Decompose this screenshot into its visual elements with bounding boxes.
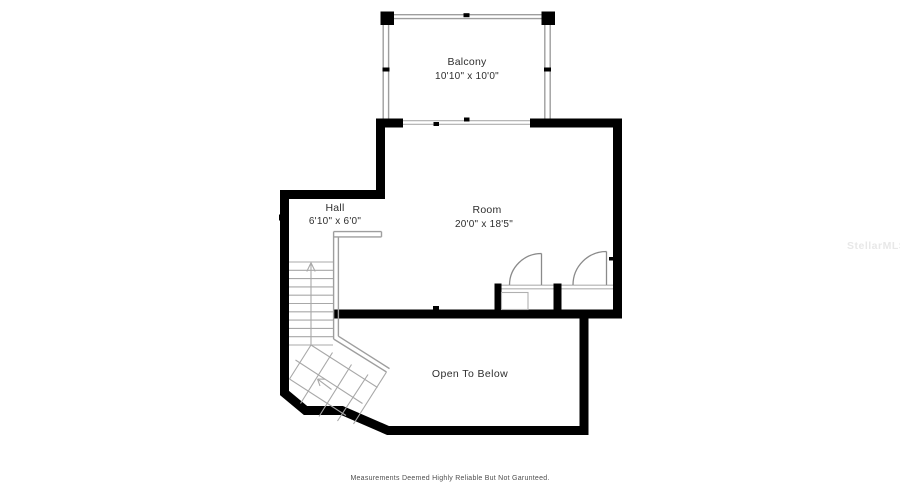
railing-lines: [334, 232, 390, 372]
floorplan-page: Balcony 10'10" x 10'0" Room 20'0" x 18'5…: [0, 0, 900, 500]
tick-balcony-right: [544, 68, 551, 72]
tick-window-right: [464, 118, 470, 122]
door-left-closet: [510, 254, 542, 286]
tick-right-wall: [609, 257, 614, 261]
stairs-straight-run: [289, 262, 333, 345]
exterior-walls: [285, 123, 618, 431]
open-to-below-label: Open To Below: [432, 369, 508, 380]
hall-name-label: Hall: [325, 203, 344, 214]
stellar-mls-watermark: StellarMLS: [847, 241, 900, 252]
winder-direction-arrow: [318, 379, 332, 390]
room-name-label: Room: [472, 205, 501, 216]
room-dims-label: 20'0" x 18'5": [455, 220, 513, 230]
tick-window-left: [434, 122, 440, 126]
hall-dims-label: 6'10" x 6'0": [309, 217, 361, 227]
tick-hall-left: [279, 215, 283, 221]
tick-bottom-wall: [433, 306, 439, 310]
balcony-dims-label: 10'10" x 10'0": [435, 72, 499, 82]
tick-balcony-left: [383, 68, 390, 72]
doors: [510, 252, 607, 286]
measurements-disclaimer: Measurements Deemed Highly Reliable But …: [350, 475, 549, 482]
door-right-closet: [573, 252, 607, 286]
balcony-name-label: Balcony: [447, 57, 486, 68]
tick-balcony-top: [464, 13, 470, 17]
stair-railing: [334, 232, 390, 372]
balcony-post-left: [381, 12, 395, 26]
balcony-post-right: [542, 12, 556, 26]
wall-left-and-bottom-outline: [285, 123, 585, 431]
closet-shelf: [502, 293, 529, 310]
tick-hall-top: [352, 190, 358, 194]
